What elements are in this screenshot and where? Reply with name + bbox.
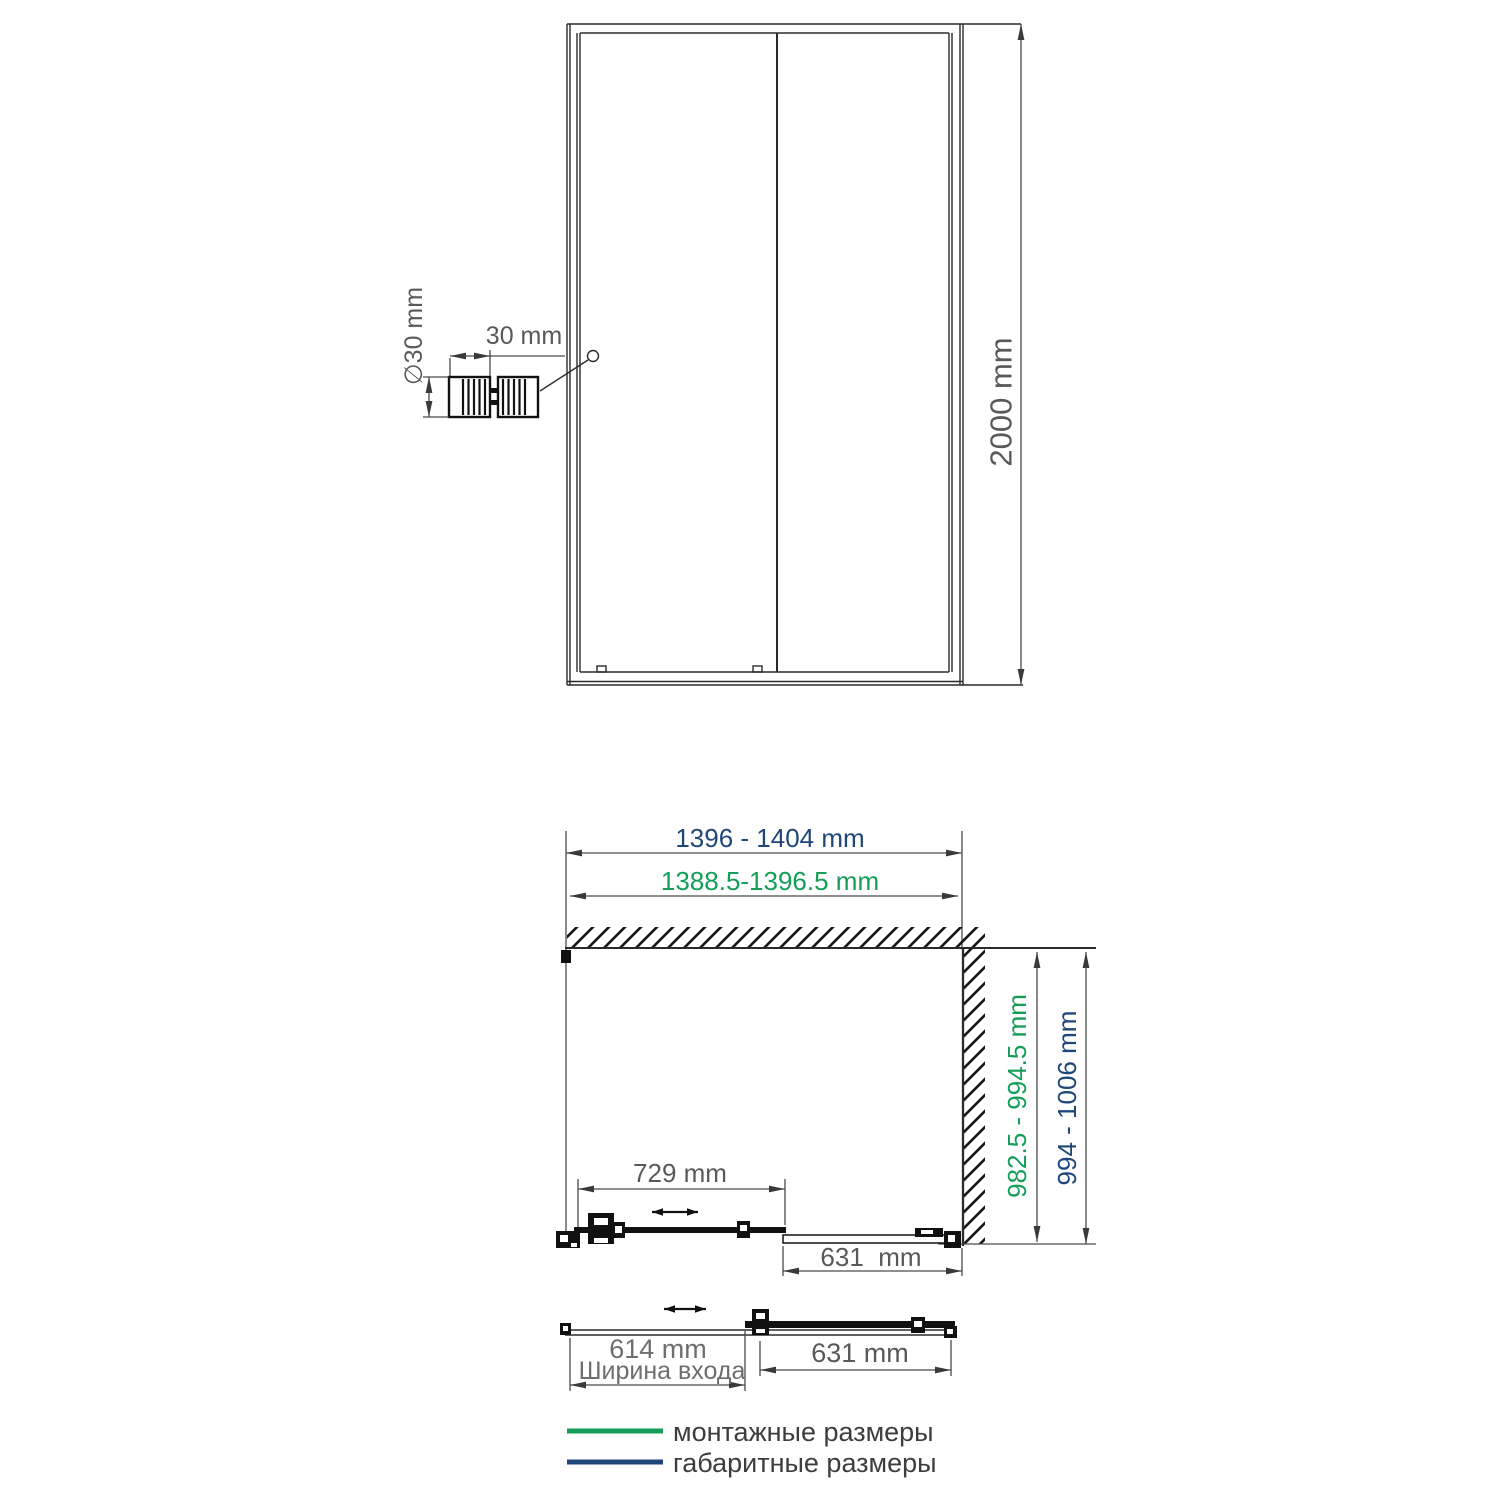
front-view-frame — [567, 24, 1023, 685]
fixed-panel-dimension-open: 631 mm — [760, 1338, 951, 1376]
front-view: 2000 mm — [567, 24, 1023, 685]
technical-drawing-page: 2000 mm ∅30 mm 30 mm 1 — [0, 0, 1500, 1500]
rail-end-left — [560, 1323, 571, 1335]
height-dimension: 2000 mm — [984, 24, 1022, 685]
shower-door-diagram: 2000 mm ∅30 mm 30 mm 1 — [0, 0, 1500, 1500]
handle-diameter-label: ∅30 mm — [400, 287, 428, 385]
handle-neck — [490, 388, 498, 393]
rail-clip — [753, 666, 762, 672]
overall-width-label: 1396 - 1404 mm — [675, 823, 864, 853]
rail-clip — [597, 666, 606, 672]
overall-depth-dimension: 994 - 1006 mm — [1052, 952, 1086, 1244]
handle-width-label: 30 mm — [486, 322, 562, 350]
leader-line — [540, 360, 588, 391]
wall-hatch-right — [964, 948, 986, 1244]
door-panel-open — [745, 1309, 957, 1338]
open-position-view: 614 mm Ширина входа 631 mm — [560, 1309, 957, 1391]
legend: монтажные размеры габаритные размеры — [567, 1417, 937, 1478]
wall-profile-bottom-left — [556, 1231, 580, 1248]
entry-width-caption: Ширина входа — [579, 1357, 746, 1385]
install-width-dimension: 1388.5-1396.5 mm — [570, 866, 958, 896]
sliding-panel-label: 729 mm — [633, 1158, 727, 1188]
fixed-panel-label: 631 mm — [820, 1242, 921, 1272]
install-width-label: 1388.5-1396.5 mm — [661, 866, 879, 896]
wall-hatch-top — [567, 927, 985, 948]
fixed-panel-open-label: 631 mm — [811, 1338, 909, 1368]
handle-diameter-dimension: ∅30 mm — [400, 287, 449, 417]
wall-profile-anchor-top — [561, 950, 571, 963]
entry-width-dimension: 614 mm Ширина входа — [570, 1331, 745, 1391]
handle-mount-circle — [588, 351, 599, 362]
handle-detail: ∅30 mm 30 mm — [400, 287, 588, 417]
install-depth-label: 982.5 - 994.5 mm — [1002, 994, 1032, 1198]
overall-depth-label: 994 - 1006 mm — [1052, 1011, 1082, 1186]
legend-overall-label: габаритные размеры — [673, 1448, 937, 1478]
height-label: 2000 mm — [984, 337, 1019, 466]
plan-view: 1396 - 1404 mm 1388.5-1396.5 mm 982.5 - … — [556, 823, 1096, 1276]
handle-width-dimension: 30 mm — [450, 322, 565, 376]
handle-neck — [490, 400, 498, 405]
fixed-panel-dimension: 631 mm — [783, 1242, 962, 1276]
sliding-panel — [574, 1213, 786, 1244]
legend-install-label: монтажные размеры — [673, 1417, 934, 1447]
